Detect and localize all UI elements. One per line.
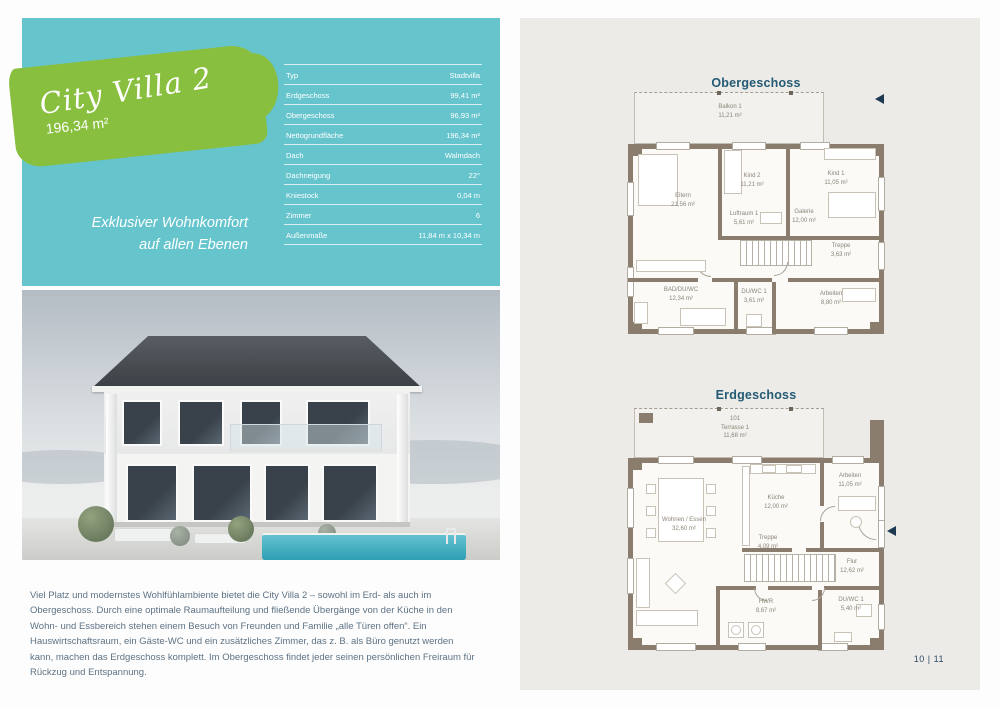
wall-pillar — [628, 638, 642, 650]
office-chair — [850, 516, 862, 528]
window — [738, 643, 766, 651]
wall — [806, 548, 884, 552]
window — [627, 267, 634, 297]
window — [878, 486, 885, 522]
wall — [628, 458, 633, 650]
swimming-pool — [262, 533, 466, 560]
balcony-area: Balkon 111,21 m² — [634, 92, 824, 144]
upper-window — [122, 400, 162, 446]
bush — [78, 506, 114, 542]
section-arrow-icon — [875, 94, 884, 104]
wall — [716, 586, 720, 650]
sofa — [636, 558, 650, 608]
chair — [646, 506, 656, 516]
plans-panel: Obergeschoss Balkon 111,21 m² — [520, 18, 980, 690]
window — [656, 142, 690, 150]
kitchen-counter — [750, 464, 816, 474]
spec-row-dachneigung: Dachneigung22° — [284, 165, 482, 185]
sink — [834, 632, 852, 642]
porch-column-left — [106, 394, 117, 524]
info-panel: City Villa 2 196,34 m² Exklusiver Wohnko… — [22, 18, 500, 286]
chair — [706, 484, 716, 494]
room-label-treppe-eg: Treppe4,09 m² — [746, 534, 790, 551]
room-label-bad: BAD/DU/WC12,34 m² — [646, 286, 716, 303]
room-label-kind2: Kind 211,21 m² — [724, 172, 780, 189]
dryer-drum-icon — [751, 625, 761, 635]
window — [878, 242, 885, 270]
wardrobe — [824, 148, 876, 160]
house-base-shadow — [104, 522, 410, 527]
entrance-door — [878, 520, 885, 548]
lower-patio-door — [192, 464, 252, 522]
window — [814, 327, 848, 335]
chair — [706, 506, 716, 516]
room-label-luftraum: Luftraum 15,61 m² — [720, 210, 768, 227]
wall — [824, 586, 884, 590]
boxwood-sphere — [170, 526, 190, 546]
wall — [788, 278, 884, 282]
pool-ladder-icon — [446, 528, 456, 544]
spec-row-kniestock: Kniestock0,04 m — [284, 185, 482, 205]
description-text: Viel Platz und modernstes Wohlfühlambien… — [30, 588, 478, 680]
house-illustration — [92, 336, 422, 526]
lower-patio-door — [322, 464, 378, 522]
bush — [228, 516, 254, 542]
window — [732, 142, 766, 150]
spec-row-obergeschoss: Obergeschoss96,93 m² — [284, 105, 482, 125]
terrace-area: 101 Terrasse 1 11,68 m² — [634, 408, 824, 458]
railing-post-dot-icon — [789, 407, 793, 411]
room-label-flur: Flur12,62 m² — [828, 558, 876, 575]
erdgeschoss-title: Erdgeschoss — [628, 388, 884, 402]
tagline-line2: auf allen Ebenen — [56, 234, 248, 256]
window — [658, 456, 694, 464]
wall-pillar — [870, 322, 884, 334]
window — [658, 327, 694, 335]
hipped-roof — [92, 336, 422, 388]
toilet — [746, 314, 762, 327]
entrance-arrow-icon — [887, 526, 896, 536]
window — [832, 456, 864, 464]
bathtub — [680, 308, 726, 326]
terrace-fixture — [639, 413, 653, 423]
floorplan-obergeschoss: Balkon 111,21 m² — [628, 92, 884, 334]
wardrobe — [636, 260, 706, 272]
washer-drum-icon — [731, 625, 741, 635]
window — [627, 182, 634, 216]
upper-window — [178, 400, 224, 446]
railing-post-dot-icon — [789, 91, 793, 95]
room-label-duwc: DU/WC 13,61 m² — [734, 288, 774, 305]
room-label-duwc-eg: DU/WC 15,40 m² — [826, 596, 876, 613]
room-label-eltern: Eltern21,56 m² — [648, 192, 718, 209]
room-label-kueche: Küche12,00 m² — [748, 494, 804, 511]
spec-row-typ: TypStadtvilla — [284, 65, 482, 85]
desk — [838, 496, 876, 511]
spec-table: TypStadtvilla Erdgeschoss99,41 m² Oberge… — [284, 64, 482, 245]
window — [627, 488, 634, 528]
staircase — [744, 554, 836, 582]
spec-row-dach: DachWalmdach — [284, 145, 482, 165]
wall-pillar — [870, 638, 884, 650]
spec-row-erdgeschoss: Erdgeschoss99,41 m² — [284, 85, 482, 105]
sofa — [636, 610, 698, 626]
stove — [786, 465, 802, 473]
window — [818, 643, 848, 651]
room-label-hwr: HWR8,67 m² — [736, 598, 796, 615]
bed — [828, 192, 876, 218]
wall — [628, 278, 698, 282]
kitchen-sink — [762, 465, 776, 473]
lower-window — [126, 464, 178, 522]
wall — [628, 144, 633, 334]
brochure-page: City Villa 2 196,34 m² Exklusiver Wohnko… — [0, 0, 1000, 708]
window — [878, 177, 885, 211]
railing-post-dot-icon — [717, 91, 721, 95]
wall — [786, 144, 790, 240]
tagline: Exklusiver Wohnkomfort auf allen Ebenen — [56, 212, 248, 257]
window — [878, 604, 885, 630]
chair — [646, 484, 656, 494]
window — [627, 558, 634, 594]
room-label-balkon: Balkon 111,21 m² — [675, 103, 785, 120]
window — [656, 643, 696, 651]
floorplan-erdgeschoss: 101 Terrasse 1 11,68 m² — [628, 408, 884, 650]
window — [732, 456, 762, 464]
page-number: 10 | 11 — [914, 654, 944, 664]
tagline-line1: Exklusiver Wohnkomfort — [56, 212, 248, 234]
lower-window — [264, 464, 310, 522]
room-label-kind1: Kind 111,05 m² — [806, 170, 866, 187]
house-photo — [22, 290, 500, 560]
room-label-treppe: Treppe3,63 m² — [816, 242, 866, 259]
green-brush-stroke: City Villa 2 196,34 m² — [7, 43, 268, 169]
railing-post-dot-icon — [717, 407, 721, 411]
wall-pillar — [628, 458, 642, 470]
wall-pillar — [870, 420, 884, 462]
room-label-arbeiten-eg: Arbeiten11,05 m² — [820, 472, 880, 489]
spec-row-aussenmasse: Außenmaße11,84 m x 10,34 m — [284, 225, 482, 245]
glass-balcony-railing — [230, 424, 382, 452]
room-label-arbeiten-og: Arbeiten8,80 m² — [796, 290, 866, 307]
room-label-galerie: Galerie12,00 m² — [778, 208, 830, 225]
porch-column-right — [397, 394, 408, 524]
spec-row-zimmer: Zimmer6 — [284, 205, 482, 225]
sink — [634, 302, 648, 324]
room-label-wohnen-essen: Wohnen / Essen32,60 m² — [644, 516, 724, 533]
room-label-terrasse: 101 Terrasse 1 11,68 m² — [695, 415, 775, 441]
wall — [768, 586, 812, 590]
spec-row-nettogrundflaeche: Nettogrundfläche196,34 m² — [284, 125, 482, 145]
wall — [712, 278, 772, 282]
obergeschoss-title: Obergeschoss — [628, 76, 884, 90]
wall — [716, 586, 756, 590]
